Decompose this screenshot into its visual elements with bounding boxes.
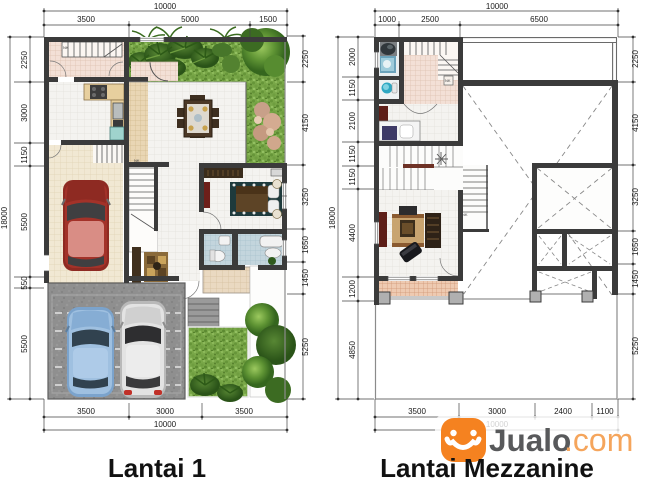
svg-text:3500: 3500 [235, 407, 253, 416]
svg-text:6500: 6500 [530, 15, 548, 24]
svg-text:2000: 2000 [348, 48, 357, 66]
svg-text:NK: NK [63, 45, 69, 50]
svg-text:1450: 1450 [631, 270, 640, 288]
svg-text:5500: 5500 [20, 335, 29, 353]
svg-text:3000: 3000 [488, 407, 506, 416]
svg-text:550: 550 [20, 276, 29, 290]
svg-text:1150: 1150 [348, 168, 357, 186]
svg-text:2400: 2400 [554, 407, 572, 416]
svg-text:1450: 1450 [301, 269, 310, 287]
svg-text:2250: 2250 [20, 51, 29, 69]
svg-text:1150: 1150 [348, 79, 357, 97]
svg-text:3500: 3500 [408, 407, 426, 416]
svg-text:1650: 1650 [301, 236, 310, 254]
svg-text:5000: 5000 [181, 15, 199, 24]
svg-text:4850: 4850 [348, 341, 357, 359]
svg-text:3250: 3250 [631, 188, 640, 206]
svg-text:3000: 3000 [156, 407, 174, 416]
svg-text:1150: 1150 [20, 146, 29, 164]
svg-text:2500: 2500 [421, 15, 439, 24]
svg-text:1500: 1500 [259, 15, 277, 24]
svg-text:5500: 5500 [20, 213, 29, 231]
svg-text:2250: 2250 [301, 50, 310, 68]
svg-text:18000: 18000 [0, 206, 9, 229]
svg-text:2100: 2100 [348, 112, 357, 130]
svg-text:1200: 1200 [348, 280, 357, 298]
svg-text:2250: 2250 [631, 50, 640, 68]
svg-text:3500: 3500 [77, 15, 95, 24]
svg-text:1000: 1000 [378, 15, 396, 24]
svg-text:18000: 18000 [328, 206, 337, 229]
svg-text:1100: 1100 [596, 407, 614, 416]
svg-text:4150: 4150 [301, 114, 310, 132]
svg-text:1650: 1650 [631, 238, 640, 256]
svg-text:5250: 5250 [301, 338, 310, 356]
svg-text:4400: 4400 [348, 224, 357, 242]
svg-text:10000: 10000 [486, 2, 509, 11]
svg-text:10000: 10000 [154, 420, 177, 429]
svg-text:5250: 5250 [631, 337, 640, 355]
svg-text:3500: 3500 [77, 407, 95, 416]
svg-text:NK: NK [445, 78, 451, 83]
svg-text:3000: 3000 [20, 104, 29, 122]
svg-text:10000: 10000 [154, 2, 177, 11]
svg-text:Lantai 1: Lantai 1 [108, 453, 206, 483]
svg-text:3250: 3250 [301, 188, 310, 206]
svg-text:1150: 1150 [348, 145, 357, 163]
svg-text:Lantai Mezzanine: Lantai Mezzanine [380, 453, 594, 483]
svg-text:4150: 4150 [631, 114, 640, 132]
